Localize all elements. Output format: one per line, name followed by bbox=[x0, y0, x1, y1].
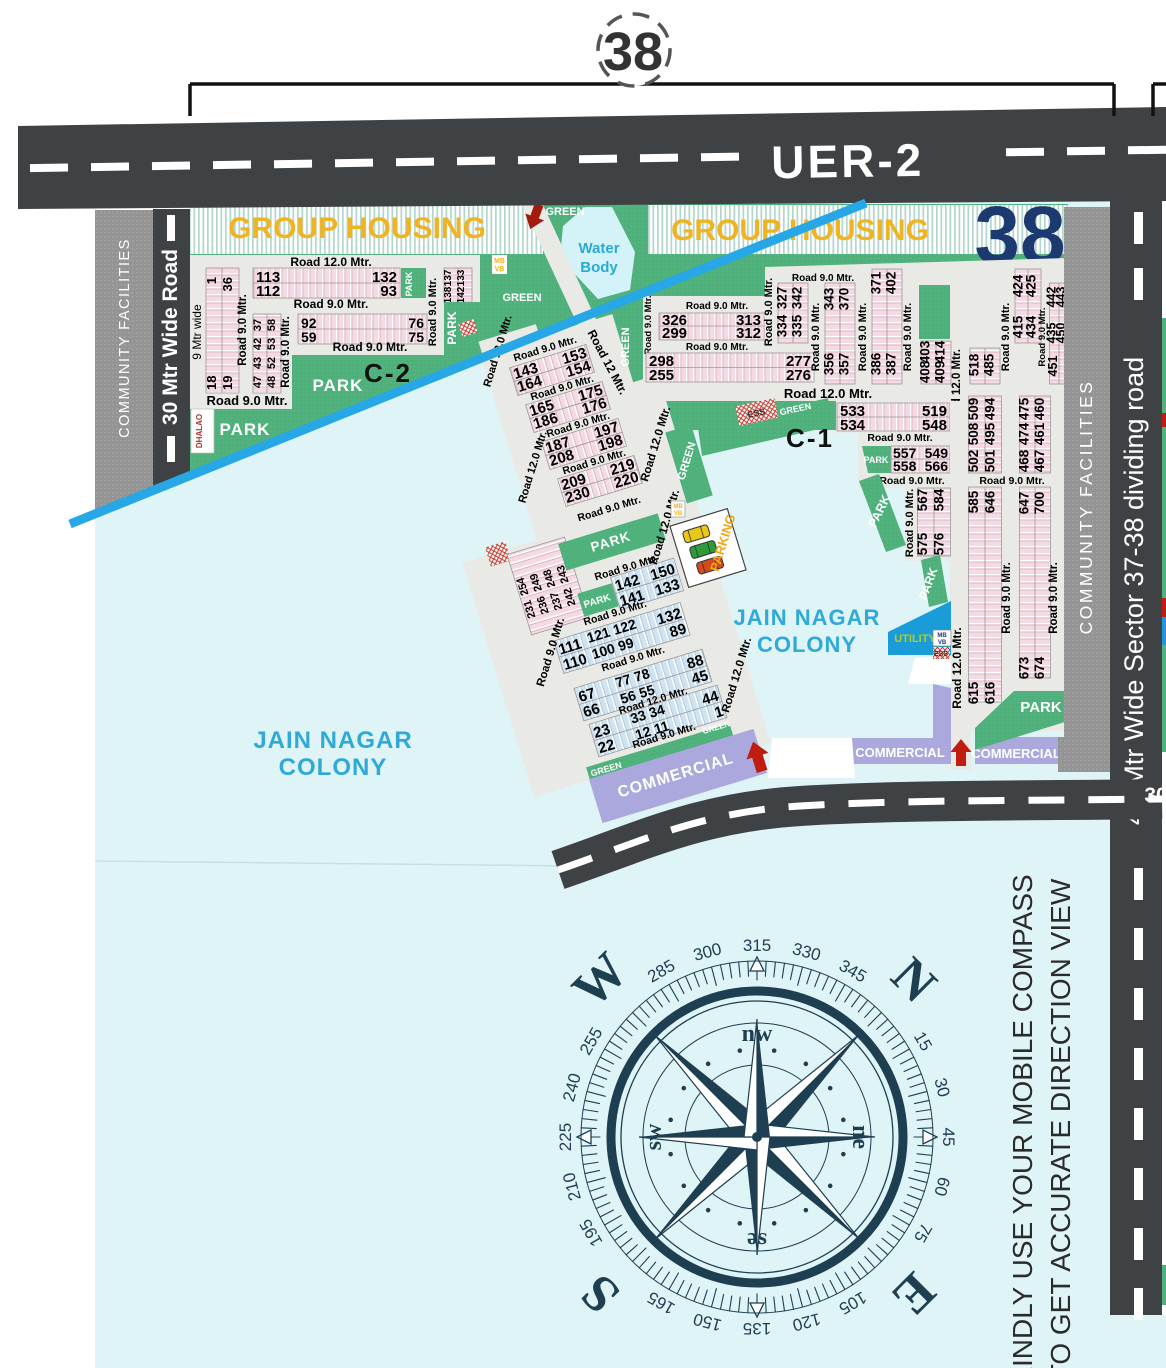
svg-text:Road 9.0 Mtr.: Road 9.0 Mtr. bbox=[207, 393, 288, 408]
svg-text:PARK: PARK bbox=[864, 455, 889, 465]
svg-text:42: 42 bbox=[252, 338, 264, 350]
svg-text:Road 9.0 Mtr.: Road 9.0 Mtr. bbox=[294, 297, 369, 311]
svg-text:386: 386 bbox=[869, 352, 884, 375]
svg-text:58: 58 bbox=[266, 319, 278, 331]
svg-text:558: 558 bbox=[893, 458, 917, 474]
svg-text:MB: MB bbox=[494, 258, 505, 265]
svg-text:137: 137 bbox=[443, 269, 454, 286]
svg-text:Road 9.0 Mtr.: Road 9.0 Mtr. bbox=[427, 278, 439, 346]
svg-text:DHALAO: DHALAO bbox=[195, 414, 204, 448]
svg-text:225: 225 bbox=[556, 1123, 575, 1151]
svg-text:461: 461 bbox=[1032, 422, 1047, 445]
svg-text:Road 9.0 Mtr.: Road 9.0 Mtr. bbox=[1001, 562, 1013, 634]
svg-text:Road 9.0 Mtr.: Road 9.0 Mtr. bbox=[867, 432, 932, 444]
svg-text:647: 647 bbox=[1016, 492, 1031, 515]
svg-text:371: 371 bbox=[869, 271, 884, 294]
svg-text:475: 475 bbox=[1016, 397, 1031, 420]
svg-text:ne: ne bbox=[847, 1125, 873, 1149]
svg-text:584: 584 bbox=[931, 488, 946, 511]
svg-text:COMMUNITY FACILITIES: COMMUNITY FACILITIES bbox=[117, 238, 133, 438]
svg-text:343: 343 bbox=[822, 287, 837, 310]
svg-text:sw: sw bbox=[641, 1123, 667, 1150]
svg-text:COLONY: COLONY bbox=[279, 754, 388, 781]
svg-text:COLONY: COLONY bbox=[757, 632, 857, 657]
svg-text:409: 409 bbox=[933, 361, 948, 384]
svg-text:646: 646 bbox=[982, 490, 997, 513]
svg-text:VB: VB bbox=[495, 266, 505, 273]
svg-text:Road 9.0 Mtr.: Road 9.0 Mtr. bbox=[686, 342, 748, 353]
svg-text:133: 133 bbox=[456, 269, 467, 286]
svg-text:KINDLY USE YOUR MOBILE COMPASS: KINDLY USE YOUR MOBILE COMPASS bbox=[1007, 874, 1038, 1368]
svg-text:53: 53 bbox=[266, 338, 278, 350]
svg-text:509: 509 bbox=[966, 398, 981, 421]
svg-text:615: 615 bbox=[966, 681, 981, 704]
svg-text:30 Mtr Wide Road: 30 Mtr Wide Road bbox=[159, 249, 182, 425]
svg-text:403: 403 bbox=[918, 340, 933, 363]
svg-text:COMMERCIAL: COMMERCIAL bbox=[971, 746, 1061, 761]
svg-text:C-2: C-2 bbox=[364, 358, 412, 388]
svg-text:276: 276 bbox=[786, 367, 811, 384]
svg-text:47: 47 bbox=[252, 376, 264, 388]
svg-text:Road 9.0 Mtr.: Road 9.0 Mtr. bbox=[979, 475, 1044, 487]
svg-text:9 Mtr wide: 9 Mtr wide bbox=[190, 304, 204, 360]
svg-text:467: 467 bbox=[1032, 450, 1047, 473]
svg-text:1: 1 bbox=[204, 277, 219, 284]
svg-text:MB: MB bbox=[937, 633, 947, 639]
svg-text:Body: Body bbox=[580, 259, 618, 276]
svg-text:370: 370 bbox=[837, 288, 852, 311]
svg-text:Road 9.0 Mtr.: Road 9.0 Mtr. bbox=[643, 295, 654, 354]
svg-text:59: 59 bbox=[301, 329, 317, 345]
svg-text:C-1: C-1 bbox=[786, 423, 834, 453]
svg-text:52: 52 bbox=[266, 357, 278, 369]
svg-text:518: 518 bbox=[967, 353, 982, 376]
svg-text:576: 576 bbox=[931, 532, 946, 555]
svg-text:474: 474 bbox=[1016, 422, 1031, 445]
svg-text:414: 414 bbox=[933, 340, 948, 363]
svg-text:Road 9.0 Mtr.: Road 9.0 Mtr. bbox=[763, 278, 775, 346]
svg-text:36: 36 bbox=[220, 277, 235, 291]
svg-text:674: 674 bbox=[1032, 656, 1047, 679]
svg-text:468: 468 bbox=[1016, 449, 1031, 472]
svg-text:UER-2: UER-2 bbox=[771, 134, 925, 188]
svg-text:37: 37 bbox=[252, 319, 264, 331]
svg-text:GREEN: GREEN bbox=[620, 327, 632, 366]
svg-text:PARK: PARK bbox=[313, 376, 364, 395]
svg-text:534: 534 bbox=[840, 417, 866, 434]
svg-text:ESS: ESS bbox=[934, 651, 948, 658]
svg-text:Road 9.0 Mtr.: Road 9.0 Mtr. bbox=[1048, 562, 1060, 634]
svg-text:Road 9.0 Mtr.: Road 9.0 Mtr. bbox=[902, 303, 914, 371]
svg-text:Road 9.0 Mtr.: Road 9.0 Mtr. bbox=[1037, 307, 1048, 366]
svg-text:GREEN: GREEN bbox=[502, 292, 541, 304]
svg-text:PARK: PARK bbox=[404, 271, 414, 296]
svg-text:VB: VB bbox=[938, 640, 947, 646]
svg-text:30: 30 bbox=[1144, 784, 1166, 807]
svg-text:Water: Water bbox=[578, 240, 619, 257]
svg-text:494: 494 bbox=[982, 397, 997, 420]
svg-text:357: 357 bbox=[837, 353, 852, 376]
svg-text:UTILITY: UTILITY bbox=[894, 633, 936, 645]
svg-text:PARK: PARK bbox=[1020, 699, 1062, 716]
svg-text:MB: MB bbox=[673, 504, 683, 510]
svg-text:Road 9.0 Mtr.: Road 9.0 Mtr. bbox=[904, 489, 916, 557]
svg-text:460: 460 bbox=[1032, 398, 1047, 421]
svg-text:Road 9.0 Mtr.: Road 9.0 Mtr. bbox=[333, 340, 408, 354]
svg-text:Road 9.0 Mtr.: Road 9.0 Mtr. bbox=[810, 303, 822, 371]
svg-text:327: 327 bbox=[775, 287, 790, 310]
svg-text:700: 700 bbox=[1032, 492, 1047, 515]
svg-text:575: 575 bbox=[915, 532, 930, 555]
svg-text:PARK: PARK bbox=[445, 311, 459, 344]
svg-text:342: 342 bbox=[790, 287, 805, 310]
svg-text:255: 255 bbox=[649, 367, 674, 384]
svg-text:GREEN: GREEN bbox=[545, 206, 584, 218]
svg-text:356: 356 bbox=[822, 352, 837, 375]
svg-text:567: 567 bbox=[915, 489, 930, 512]
svg-text:se: se bbox=[747, 1227, 767, 1253]
svg-text:43: 43 bbox=[252, 357, 264, 369]
svg-text:566: 566 bbox=[925, 458, 949, 474]
svg-text:18: 18 bbox=[204, 376, 219, 390]
svg-text:45: 45 bbox=[939, 1128, 958, 1147]
svg-text:585: 585 bbox=[966, 490, 981, 513]
svg-text:673: 673 bbox=[1016, 656, 1031, 679]
svg-text:38: 38 bbox=[603, 22, 663, 82]
svg-text:425: 425 bbox=[1024, 274, 1039, 297]
svg-text:312: 312 bbox=[736, 325, 761, 342]
svg-text:485: 485 bbox=[982, 353, 997, 376]
svg-text:Road 9.0 Mtr.: Road 9.0 Mtr. bbox=[1000, 303, 1012, 371]
svg-text:335: 335 bbox=[790, 314, 805, 337]
svg-text:334: 334 bbox=[775, 314, 790, 337]
svg-text:JAIN NAGAR: JAIN NAGAR bbox=[253, 727, 412, 754]
svg-text:TO GET ACCURATE DIRECTION VIEW: TO GET ACCURATE DIRECTION VIEW bbox=[1045, 878, 1076, 1368]
svg-text:142: 142 bbox=[456, 286, 467, 303]
svg-text:Road 9.0 Mtr.: Road 9.0 Mtr. bbox=[879, 475, 944, 487]
svg-text:93: 93 bbox=[380, 283, 397, 300]
svg-text:112: 112 bbox=[256, 283, 280, 300]
svg-text:387: 387 bbox=[884, 353, 899, 376]
svg-text:COMMUNITY FACILITIES: COMMUNITY FACILITIES bbox=[1076, 380, 1096, 635]
svg-text:315: 315 bbox=[743, 936, 771, 955]
svg-text:JAIN NAGAR: JAIN NAGAR bbox=[734, 605, 881, 630]
svg-text:PARK: PARK bbox=[220, 420, 271, 439]
svg-text:19: 19 bbox=[220, 376, 235, 390]
svg-text:Road 9.0 Mtr.: Road 9.0 Mtr. bbox=[237, 294, 249, 366]
svg-text:408: 408 bbox=[918, 360, 933, 383]
svg-text:451: 451 bbox=[1046, 356, 1060, 377]
svg-text:nw: nw bbox=[742, 1021, 773, 1047]
svg-text:VB: VB bbox=[674, 511, 683, 517]
svg-text:135: 135 bbox=[743, 1319, 771, 1338]
svg-text:299: 299 bbox=[662, 325, 687, 342]
svg-text:508: 508 bbox=[966, 422, 981, 445]
svg-text:Road 12.0 Mtr.: Road 12.0 Mtr. bbox=[290, 255, 371, 269]
svg-text:402: 402 bbox=[884, 272, 899, 295]
svg-text:Road 9.0 Mtr.: Road 9.0 Mtr. bbox=[686, 301, 748, 312]
svg-text:Road 9.0 Mtr.: Road 9.0 Mtr. bbox=[792, 273, 854, 284]
svg-text:Road 9.0 Mtr.: Road 9.0 Mtr. bbox=[857, 303, 869, 371]
svg-text:48: 48 bbox=[266, 376, 278, 388]
svg-text:GROUP HOUSING: GROUP HOUSING bbox=[228, 212, 486, 245]
svg-text:40 Mtr Wide Sector 37-38 divid: 40 Mtr Wide Sector 37-38 dividing road bbox=[1119, 357, 1149, 825]
svg-text:Road 12.0 Mtr.: Road 12.0 Mtr. bbox=[950, 627, 964, 708]
svg-text:75: 75 bbox=[408, 329, 424, 345]
svg-text:495: 495 bbox=[982, 422, 997, 445]
svg-text:616: 616 bbox=[982, 681, 997, 704]
svg-text:COMMERCIAL: COMMERCIAL bbox=[855, 745, 945, 760]
svg-text:Road 9.0 Mtr.: Road 9.0 Mtr. bbox=[280, 316, 292, 388]
svg-text:138: 138 bbox=[443, 286, 454, 303]
svg-text:501: 501 bbox=[982, 449, 997, 472]
svg-text:502: 502 bbox=[966, 450, 981, 473]
